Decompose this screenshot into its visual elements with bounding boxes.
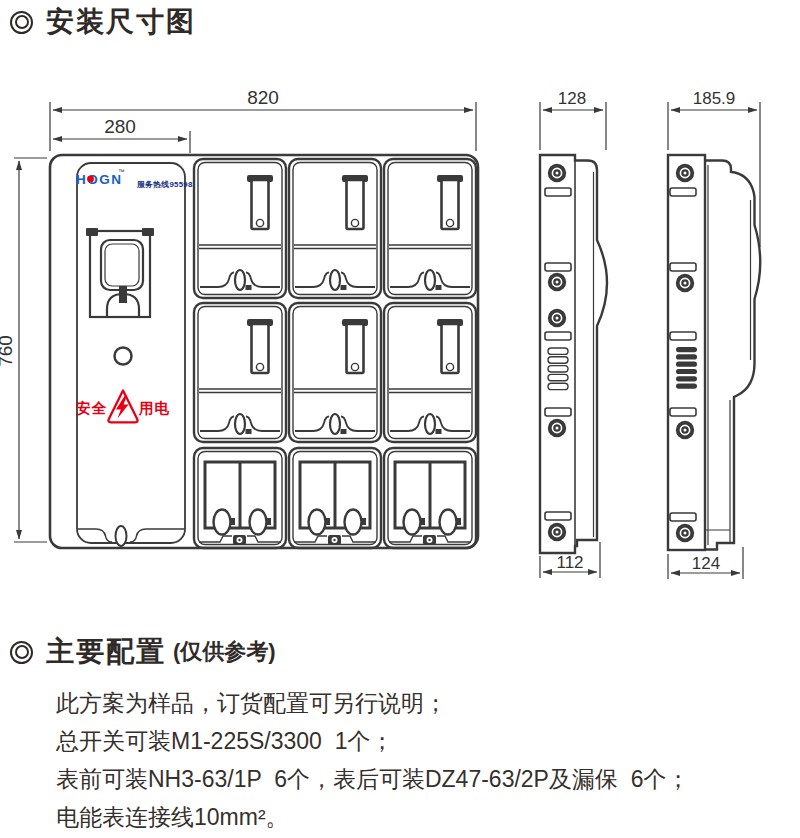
bullseye-icon	[10, 641, 33, 664]
bullseye-inner-ring	[15, 645, 29, 659]
side-right-inner-lines	[705, 400, 730, 543]
meter-compartment-4	[194, 303, 286, 442]
meter-compartment-3	[384, 159, 476, 298]
mount-slot	[670, 263, 696, 271]
bolt	[548, 273, 566, 291]
config-line-4: 电能表连接线10mm²。	[56, 798, 796, 836]
mount-slot	[545, 332, 571, 340]
brand-logo: HOGN ™ 服务热线95598	[76, 168, 193, 189]
side-view-middle	[540, 155, 607, 553]
installation-drawing: HOGN ™ 服务热线95598	[0, 0, 800, 600]
dim-label-128: 128	[558, 89, 586, 108]
door-bottom-edge	[78, 529, 184, 542]
dimensions	[14, 102, 760, 579]
front-view: HOGN ™ 服务热线95598	[50, 155, 478, 548]
safety-text-right: 用电	[138, 400, 170, 416]
mount-slot	[670, 332, 696, 340]
meter-compartment-6	[384, 303, 476, 442]
page: 安装尺寸图	[0, 0, 800, 838]
bolt	[676, 274, 694, 292]
breaker-compartment-3	[384, 448, 476, 548]
dim-label-185.9: 185.9	[693, 89, 736, 108]
breaker-compartments	[194, 448, 476, 548]
bolt	[548, 523, 566, 541]
ext-128	[540, 102, 606, 150]
meter-compartments	[194, 159, 476, 442]
dim-label-280: 280	[104, 116, 136, 137]
door-latch	[116, 526, 127, 546]
bolt	[676, 421, 694, 439]
mount-slot	[670, 408, 696, 416]
config-line-1: 此方案为样品，订货配置可另行说明；	[56, 684, 796, 722]
bolt	[548, 164, 566, 182]
mount-slot	[545, 408, 571, 416]
bolt	[548, 309, 566, 327]
config-subtitle-text: (仅供参考)	[173, 637, 276, 667]
vent-louvers-right	[676, 347, 697, 389]
dim-label-124: 124	[692, 554, 720, 573]
meter-compartment-1	[194, 159, 286, 298]
front-door: HOGN ™ 服务热线95598	[76, 163, 193, 546]
config-text-block: 此方案为样品，订货配置可另行说明； 总开关可装M1-225S/3300 1个； …	[56, 684, 796, 836]
side-right-outline	[705, 161, 760, 550]
logo-text: HOGN	[76, 172, 123, 187]
config-line-2: 总开关可装M1-225S/3300 1个；	[56, 722, 796, 760]
dim-label-112: 112	[556, 553, 583, 572]
lock-window-outer	[101, 240, 143, 290]
dim-label-760: 760	[0, 335, 16, 367]
side-view-right	[668, 155, 760, 550]
mount-slot	[670, 188, 696, 196]
vent-louvers-middle	[548, 348, 568, 390]
door-lock-window	[86, 228, 154, 317]
mount-slot	[545, 512, 571, 520]
bolt	[676, 164, 694, 182]
section-title-config: 主要配置 (仅供参考)	[10, 633, 276, 671]
meter-compartment-2	[289, 159, 381, 298]
mount-slot	[545, 263, 571, 271]
dim-label-820: 820	[247, 87, 279, 108]
safety-text-left: 安全	[76, 400, 107, 416]
safety-sign: 安全 用电	[76, 391, 170, 423]
bolt	[676, 524, 694, 542]
lock-window-inner	[105, 244, 139, 286]
mount-slot	[545, 188, 571, 196]
breaker-compartment-1	[194, 448, 286, 548]
breaker-compartment-2	[289, 448, 381, 548]
door-keyhole	[115, 348, 132, 365]
hotline-text: 服务热线95598	[136, 180, 193, 189]
bolt	[548, 419, 566, 437]
meter-compartment-5	[289, 303, 381, 442]
logo-dot	[87, 176, 94, 183]
mount-slot	[670, 513, 696, 521]
side-right-flange	[668, 155, 705, 550]
config-title-text: 主要配置	[46, 633, 166, 671]
config-line-3: 表前可装NH3-63/1P 6个，表后可装DZ47-63/2P及漏保 6个；	[56, 760, 796, 798]
logo-tm-mark: ™	[118, 168, 125, 175]
